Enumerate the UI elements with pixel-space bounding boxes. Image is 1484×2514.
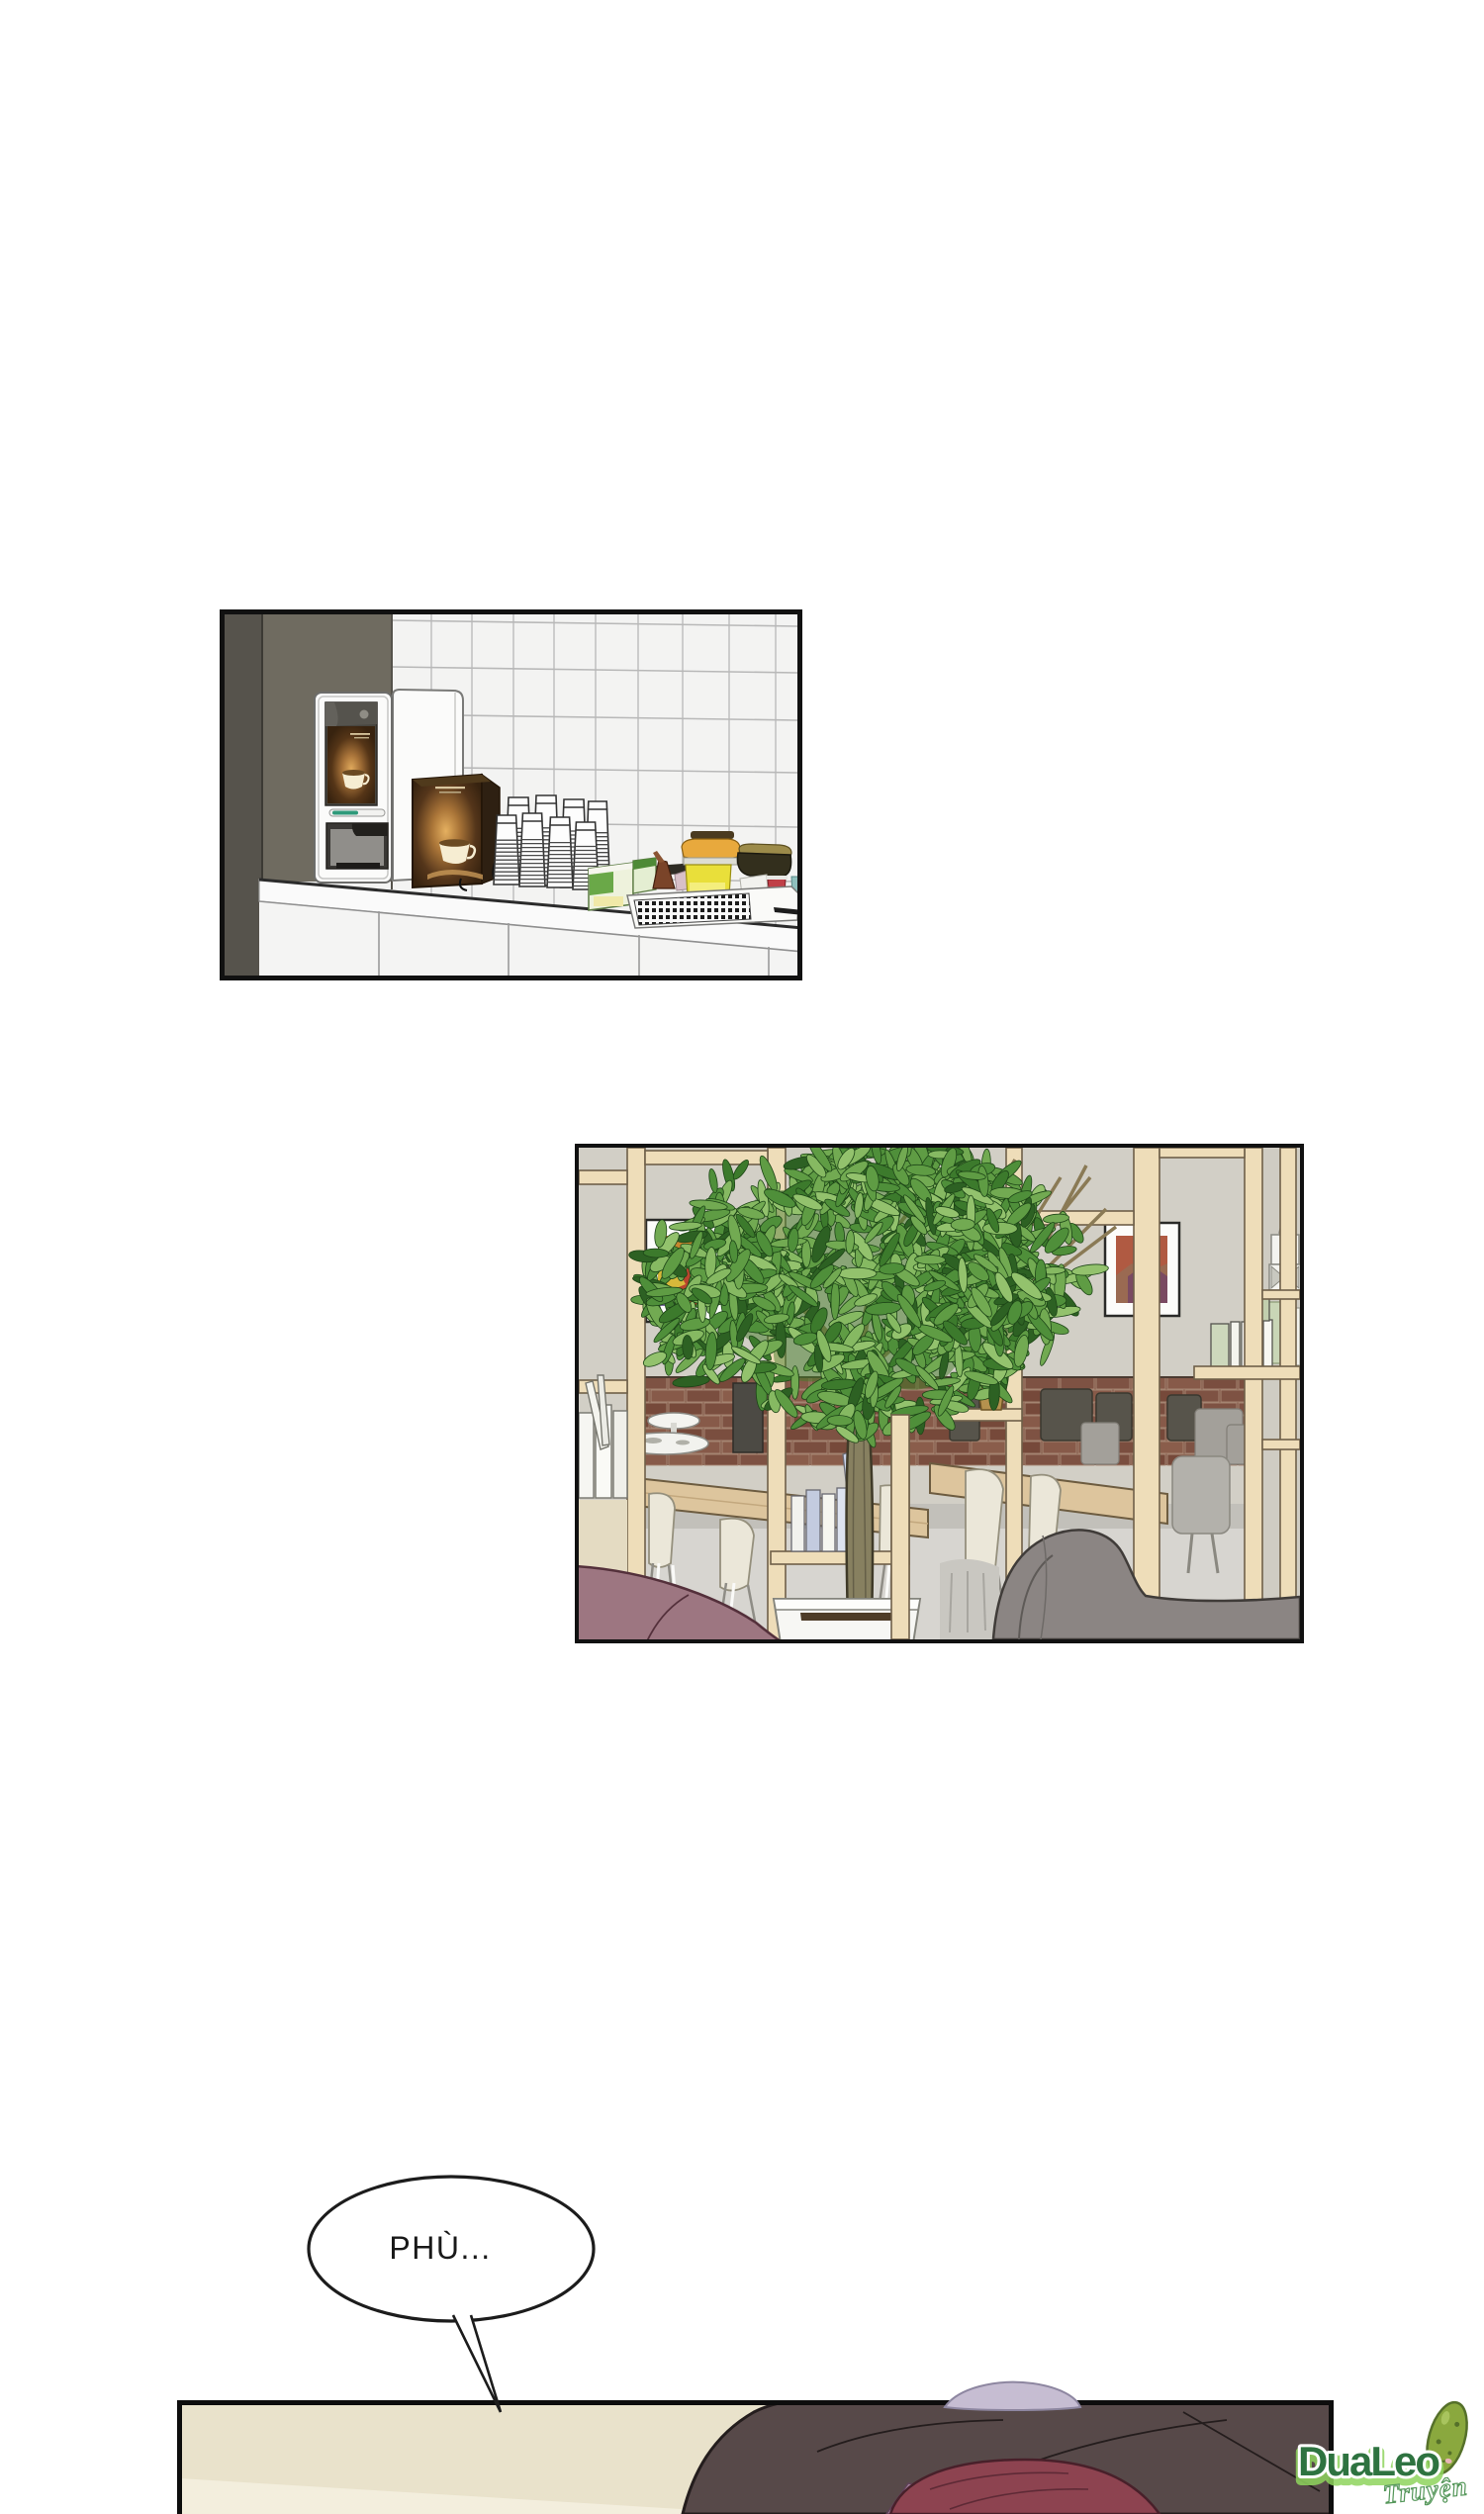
svg-text:PHÙ...: PHÙ...	[389, 2230, 491, 2266]
